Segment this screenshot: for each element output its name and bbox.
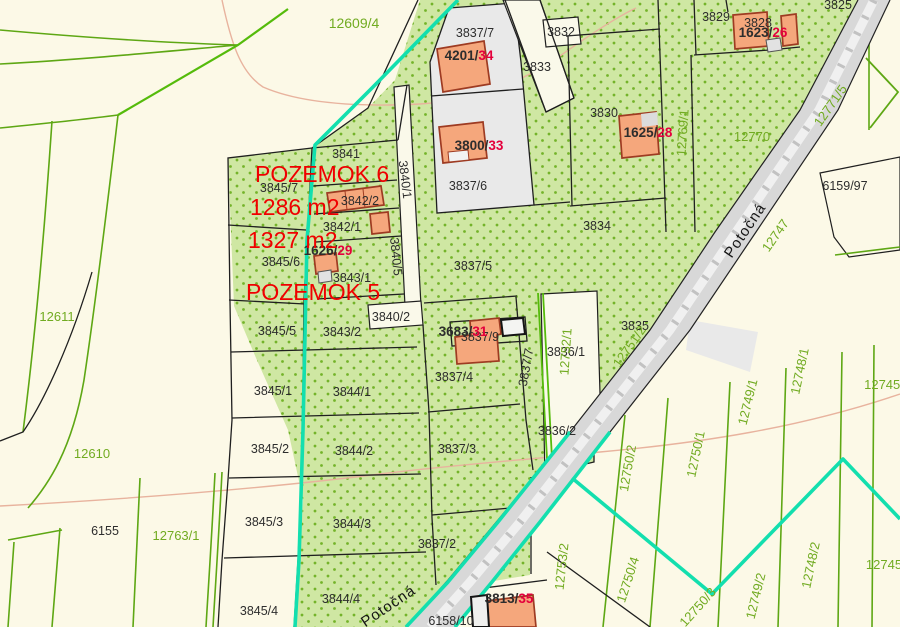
parcel-label: 3837/6 bbox=[449, 179, 487, 193]
parcel-label: 3837/2 bbox=[418, 537, 456, 551]
parcel-label: 3845/4 bbox=[240, 604, 278, 618]
parcel-label: 3845/5 bbox=[258, 324, 296, 338]
cadastral-map-stage: 3837/9 3837/7383238333829382838253830383… bbox=[0, 0, 900, 627]
parcel-label-green: 12763/1 bbox=[153, 528, 200, 543]
parcel-label: 3844/1 bbox=[333, 385, 371, 399]
parcel-label: 3845/6 bbox=[262, 255, 300, 269]
parcel-label: 3845/3 bbox=[245, 515, 283, 529]
parcel-label-green: 12745 bbox=[866, 557, 900, 572]
measurement-annotation: 1327 m2 bbox=[248, 227, 338, 253]
building-number-label: 1623/26 bbox=[739, 25, 788, 40]
parcel-label: 3844/4 bbox=[322, 592, 360, 606]
building-number-label: 3813/35 bbox=[485, 591, 534, 606]
parcel-label: 3844/2 bbox=[335, 444, 373, 458]
building-annex-3683 bbox=[501, 318, 525, 336]
building-number-label: 3800/33 bbox=[455, 138, 504, 153]
parcel-label: 3837/5 bbox=[454, 259, 492, 273]
parcel-label-green: 12611 bbox=[39, 309, 74, 324]
parcel-label-green: 12770 bbox=[734, 129, 770, 144]
building-3842-square bbox=[370, 212, 390, 234]
parcel-label: 3825 bbox=[824, 0, 852, 12]
parcel-label: 3840/2 bbox=[372, 310, 410, 324]
parcel-label: 3845/1 bbox=[254, 384, 292, 398]
parcel-label: 3841 bbox=[332, 147, 360, 161]
parcel-label: 3843/2 bbox=[323, 325, 361, 339]
parcel-label-green: 12745/ bbox=[864, 377, 900, 392]
parcel-label: 3830 bbox=[590, 106, 618, 120]
parcel-label: 3837/4 bbox=[435, 370, 473, 384]
parcel-label: 3837/7 bbox=[456, 26, 494, 40]
building-number-label: 4201/34 bbox=[445, 48, 494, 63]
parcel-label: 3836/2 bbox=[538, 424, 576, 438]
parcel-label: 3844/3 bbox=[333, 517, 371, 531]
measurement-annotation: POZEMOK 6 bbox=[255, 161, 389, 187]
parcel-label: 3834 bbox=[583, 219, 611, 233]
parcel-label-green: 12609/4 bbox=[329, 15, 380, 31]
cadastral-map[interactable]: 3837/9 3837/7383238333829382838253830383… bbox=[0, 0, 900, 627]
building-number-label: 3683/31 bbox=[439, 324, 488, 339]
parcel-label: 3833 bbox=[523, 60, 551, 74]
parcel-label-green: 12610 bbox=[74, 446, 110, 461]
building-annex-1623 bbox=[766, 38, 782, 52]
parcel-label: 6159/97 bbox=[822, 179, 867, 193]
parcel-label: 3829 bbox=[702, 10, 730, 24]
parcel-label: 3837/3 bbox=[438, 442, 476, 456]
measurement-annotation: 1286 m2 bbox=[250, 194, 340, 220]
parcel-label: 6158/10 bbox=[428, 614, 473, 627]
parcel-label: 3832 bbox=[547, 25, 575, 39]
parcel-label: 6155 bbox=[91, 524, 119, 538]
parcel-label: 3845/2 bbox=[251, 442, 289, 456]
measurement-annotation: POZEMOK 5 bbox=[246, 279, 380, 305]
parcel-label: 3842/2 bbox=[341, 194, 379, 208]
building-number-label: 1625/28 bbox=[624, 125, 673, 140]
